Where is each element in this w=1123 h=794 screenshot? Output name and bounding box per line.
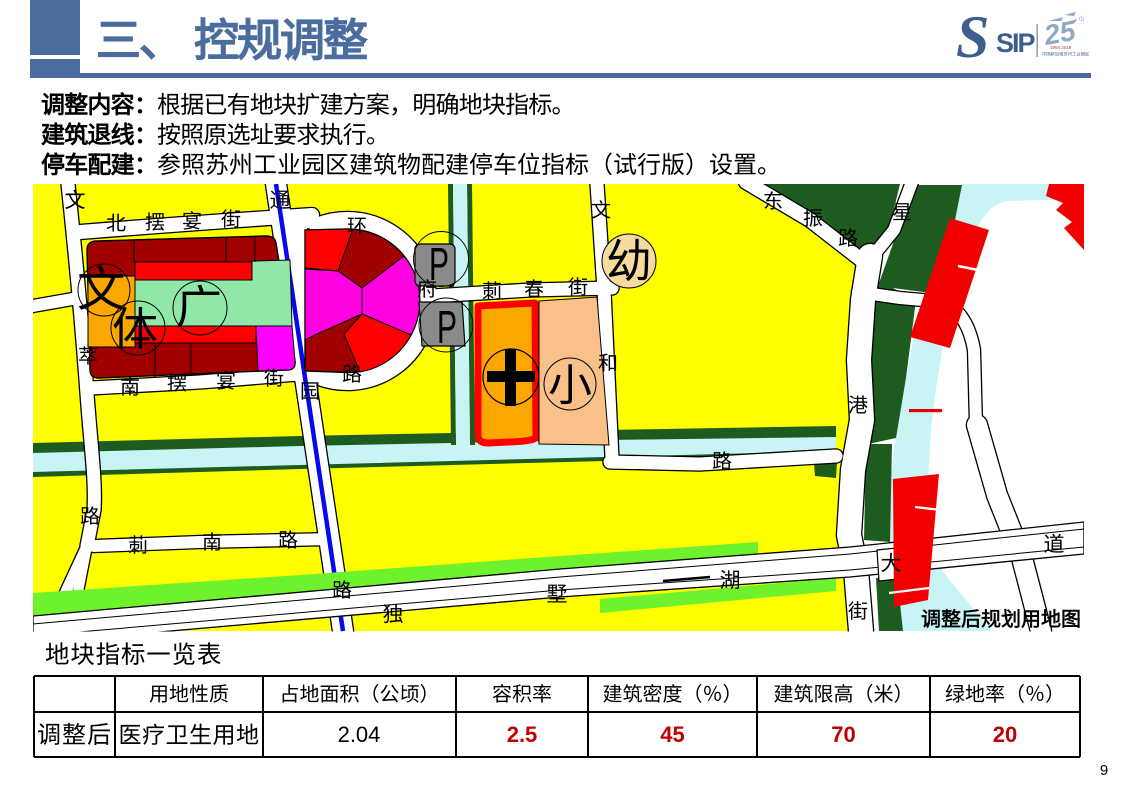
svg-text:2.04: 2.04 bbox=[338, 722, 381, 747]
svg-text:70: 70 bbox=[831, 722, 855, 747]
svg-text:20: 20 bbox=[993, 722, 1017, 747]
svg-text:S: S bbox=[956, 4, 989, 70]
svg-text:th: th bbox=[1079, 15, 1085, 23]
svg-text:9: 9 bbox=[1100, 762, 1108, 779]
svg-text:45: 45 bbox=[660, 722, 684, 747]
svg-text:1994 2019: 1994 2019 bbox=[1050, 45, 1072, 50]
svg-text:SIP: SIP bbox=[996, 28, 1036, 58]
svg-text:P: P bbox=[437, 301, 457, 353]
svg-text:2.5: 2.5 bbox=[507, 722, 538, 747]
